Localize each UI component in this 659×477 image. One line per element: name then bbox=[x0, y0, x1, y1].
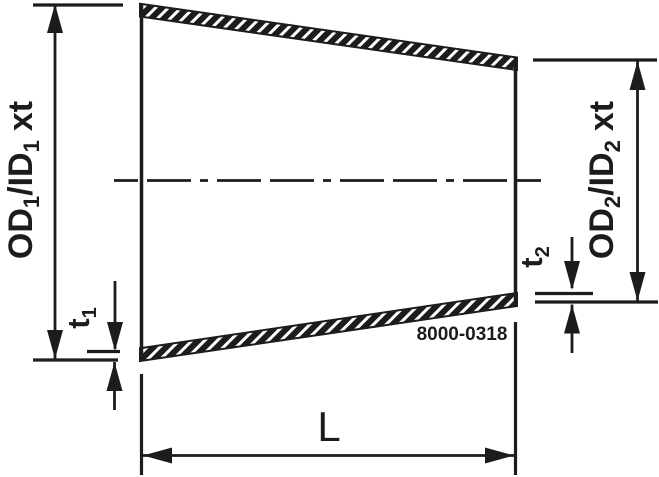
od1-arrow-down-icon bbox=[47, 330, 63, 359]
t2-label: t2 bbox=[514, 246, 554, 267]
t2-dimension: t2 bbox=[514, 237, 593, 353]
reducer-drawing-page: OD1/ID1xt t1 OD2/ID2xt t2 bbox=[0, 0, 659, 477]
od1-dimension: OD1/ID1xt bbox=[2, 4, 123, 360]
od2-arrow-up-icon bbox=[630, 61, 646, 90]
part-number: 8000-0318 bbox=[417, 324, 508, 345]
length-arrow-right-icon bbox=[485, 448, 514, 464]
od1-arrow-up-icon bbox=[47, 4, 63, 33]
top-wall-hatch bbox=[140, 4, 517, 70]
length-arrow-left-icon bbox=[143, 448, 172, 464]
od2-label: OD2/ID2xt bbox=[583, 101, 625, 259]
od2-dimension: OD2/ID2xt bbox=[533, 60, 658, 302]
od1-label: OD1/ID1xt bbox=[2, 101, 44, 259]
length-label: L bbox=[317, 403, 340, 450]
t1-arrow-down-icon bbox=[107, 322, 123, 351]
reducer-technical-drawing: OD1/ID1xt t1 OD2/ID2xt t2 bbox=[0, 0, 659, 477]
t1-label: t1 bbox=[61, 307, 101, 328]
reducer-body bbox=[114, 4, 541, 361]
t1-dimension: t1 bbox=[61, 281, 123, 410]
od2-arrow-down-icon bbox=[630, 272, 646, 301]
t2-arrow-down-icon bbox=[564, 261, 580, 290]
